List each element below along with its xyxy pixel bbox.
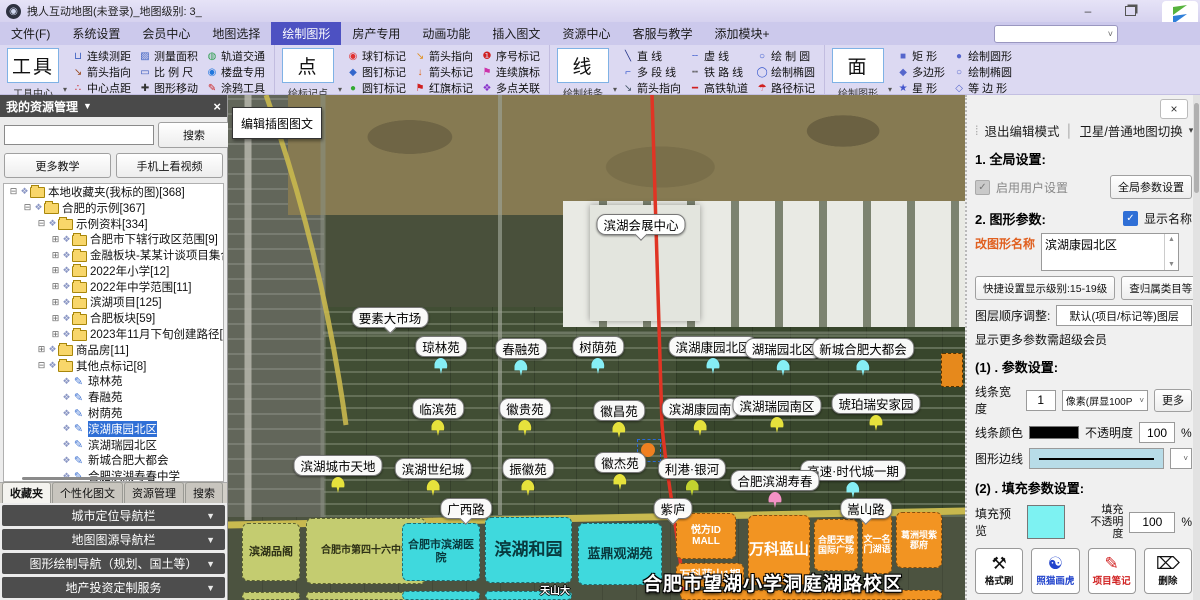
pin-dot-icon <box>518 420 531 436</box>
polyline-icon: ⌐ <box>622 67 634 78</box>
menu-item[interactable]: 客服与教学 <box>621 22 703 45</box>
tree-diamond-icon <box>61 408 72 419</box>
app-icon: ◉ <box>6 4 21 19</box>
tree-node-icon <box>72 407 85 420</box>
tree-diamond-icon <box>47 218 58 229</box>
tree-node-icon <box>58 345 73 356</box>
pin-dot-icon <box>846 482 859 498</box>
pin-dot-icon <box>768 492 781 508</box>
map-polygon[interactable]: 合肥市滨湖医院 <box>402 523 480 581</box>
map-pin[interactable]: 合肥滨湖寿春 <box>730 470 819 508</box>
tree-node-icon <box>72 314 87 325</box>
menu-item[interactable]: 房产专用 <box>341 22 411 45</box>
toolbar-item[interactable]: ╲直 线 <box>620 48 683 64</box>
railway-line-icon: ┅ <box>689 67 701 78</box>
straight-line-icon: ╲ <box>622 51 634 62</box>
toolbar-item[interactable]: ⊔连续测距 <box>70 48 133 64</box>
accordion-bar[interactable]: 图形绘制导航（规划、国土等） <box>2 553 225 574</box>
toolbar-item[interactable]: ◇等 边 形 <box>951 80 1014 96</box>
chevron-down-icon: ˅ <box>1108 29 1117 39</box>
pin-dot-icon <box>431 420 444 436</box>
map-pin[interactable]: 要素大市场 <box>352 307 429 332</box>
fill-settings-title: (2) . 填充参数设置: <box>975 478 1192 497</box>
draw-ellipse2-icon: ○ <box>953 67 965 78</box>
tree-expander-icon[interactable] <box>50 313 61 324</box>
panel-scrollbar[interactable] <box>1193 95 1200 600</box>
toolbar-item[interactable]: ◆图钉标记 <box>345 64 408 80</box>
map-pin[interactable]: 徽杰苑 <box>594 452 646 490</box>
fill-opacity-label: 填充 <box>1101 504 1123 516</box>
tree-expander-icon[interactable] <box>36 218 47 229</box>
shape-params-title: 2. 图形参数: <box>975 209 1046 228</box>
toolbar-item[interactable]: ↘箭头指向 <box>70 64 133 80</box>
arrow-point-icon: ↘ <box>622 83 634 94</box>
map-pin[interactable]: 滨湖世纪城 <box>395 458 472 496</box>
map-small-label: 天山大 <box>540 582 570 597</box>
tree-diamond-icon <box>33 202 44 213</box>
toolbar-item[interactable]: ◉楼盘专用 <box>204 64 267 80</box>
arrow-point-icon: ↘ <box>414 51 426 62</box>
toolbar-item[interactable]: ❶序号标记 <box>479 48 542 64</box>
tree-node[interactable]: 合肥板块[59] <box>4 310 223 326</box>
map-pin[interactable]: 振徽苑 <box>502 458 554 496</box>
toolbar-item[interactable]: ↘箭头指向 <box>412 48 475 64</box>
rect-icon: ■ <box>897 51 909 62</box>
line-opacity-input[interactable] <box>1139 422 1175 443</box>
tree-node[interactable]: 示例资料[334] <box>4 216 223 232</box>
tree-node-icon <box>72 454 85 467</box>
toolbar-item[interactable]: ■矩 形 <box>895 48 947 64</box>
tree-expander-icon[interactable] <box>50 297 61 308</box>
tree-node-icon <box>58 219 73 230</box>
tree-node-icon <box>72 282 87 293</box>
sidebar-tab[interactable]: 资源管理 <box>124 482 184 503</box>
close-icon[interactable]: × <box>213 99 221 114</box>
center-distance-icon: ∴ <box>72 83 84 94</box>
toolbar-item[interactable]: ❖多点关联 <box>479 80 542 96</box>
opacity-label: 不透明度 <box>1085 424 1133 441</box>
tree-expander-icon[interactable] <box>22 202 33 213</box>
toolbar-item[interactable]: ↘箭头指向 <box>620 80 683 96</box>
hsr-track-icon: ━ <box>689 83 701 94</box>
toolbar-item[interactable]: ┅铁 路 线 <box>687 64 750 80</box>
tree-diamond-icon <box>61 376 72 387</box>
map-pin[interactable]: 滨湖城市天地 <box>293 455 382 493</box>
tree-node-icon <box>72 391 85 404</box>
toolbar-item[interactable]: ●绘制圆形 <box>951 48 1014 64</box>
tree-node[interactable]: 滨湖康园北区 <box>4 421 223 437</box>
menu-item[interactable]: 系统设置 <box>61 22 131 45</box>
map-polygon[interactable] <box>242 592 300 600</box>
accordion-bar[interactable]: 城市定位导航栏 <box>2 505 225 526</box>
map-polygon[interactable] <box>402 591 480 600</box>
tree-node-icon <box>72 251 87 262</box>
tree-node[interactable]: 本地收藏夹(我标的图)[368] <box>4 184 223 200</box>
edge-style-select[interactable] <box>1029 448 1164 469</box>
toolbar-item[interactable]: ○绘制椭圆 <box>951 64 1014 80</box>
quick-level-button[interactable]: 快捷设置显示级别:15-19级 <box>975 276 1115 300</box>
pin-dot-icon <box>685 480 698 496</box>
panel-tool-button[interactable]: ☯ 照猫画虎 <box>1031 548 1079 594</box>
tree-node[interactable]: 合肥市下辖行政区范围[9] <box>4 231 223 247</box>
tree-node-icon <box>72 266 87 277</box>
small-poi-marker[interactable] <box>941 353 963 387</box>
pin-dot-icon <box>434 358 447 374</box>
tree-diamond-icon <box>19 186 30 197</box>
search-button[interactable]: 搜索 <box>158 122 230 148</box>
rename-label: 改图形名称 <box>975 235 1035 252</box>
tree-diamond-icon <box>61 455 72 466</box>
map-pin[interactable]: 利港·银河 <box>658 458 726 496</box>
menu-item[interactable]: 动画功能 <box>411 22 481 45</box>
tree-diamond-icon <box>61 392 72 403</box>
global-params-button[interactable]: 全局参数设置 <box>1110 175 1192 199</box>
spin-down-icon[interactable]: ▼ <box>1168 261 1175 268</box>
menu-item[interactable]: 会员中心 <box>131 22 201 45</box>
toolbar-item[interactable]: ○绘 制 圆 <box>754 48 817 64</box>
map-pin[interactable]: 湖瑞园北区 <box>745 338 822 376</box>
chevron-down-icon[interactable]: ▾ <box>888 85 892 94</box>
name-scroll-spinner[interactable]: ▲ ▼ <box>1164 234 1178 270</box>
pin-dot-icon <box>869 415 882 431</box>
tree-diamond-icon <box>61 234 72 245</box>
chevron-down-icon: ˅ <box>1139 396 1144 405</box>
sidebar-tab[interactable]: 收藏夹 <box>2 482 51 503</box>
pin-dot-icon <box>776 360 789 376</box>
line-width-input[interactable] <box>1026 390 1056 411</box>
pin-dot-icon <box>856 360 869 376</box>
toolbar-item[interactable]: ◉球钉标记 <box>345 48 408 64</box>
accordion-bar[interactable]: 地图图源导航栏 <box>2 529 225 550</box>
toolbar-group-tools: 工具 工具中心 ▾ ⊔连续测距↘箭头指向∴中心点距▨测量面积▭比 例 尺✚图形移… <box>0 45 275 94</box>
tree-node[interactable]: 滨湖项目[125] <box>4 295 223 311</box>
panel-tool-buttons: ⚒ 格式刷 ☯ 照猫画虎 ✎ 项目笔记 ⌦ 删除 <box>975 548 1192 594</box>
toolbar-item[interactable]: ◆多边形 <box>895 64 947 80</box>
quick-search-combobox[interactable]: ˅ <box>994 25 1118 43</box>
menu-item[interactable]: 地图选择 <box>201 22 271 45</box>
exit-edit-mode-link[interactable]: 退出编辑模式 <box>984 121 1059 140</box>
building-icon: ◉ <box>206 67 218 78</box>
toolbar-item[interactable]: ☂路径标记 <box>754 80 817 96</box>
restore-button[interactable] <box>1122 4 1138 18</box>
pin-dot-icon <box>770 417 783 433</box>
map-pin[interactable]: 滨湖瑞园南区 <box>732 395 821 433</box>
doodle-icon: ✎ <box>206 83 218 94</box>
tree-diamond-icon <box>61 313 72 324</box>
copy-cat-icon: ☯ <box>1048 555 1063 572</box>
map-pin[interactable]: 徽贵苑 <box>499 398 551 436</box>
edit-insert-text-box[interactable]: 编辑插图图文 <box>232 107 322 139</box>
menu-item[interactable]: 添加模块+ <box>703 22 780 45</box>
tree-node[interactable]: 金融板块-某某计谈项目集合[10] <box>4 247 223 263</box>
param-settings-title: (1) . 参数设置: <box>975 357 1192 376</box>
draw-circle-icon: ○ <box>756 51 768 62</box>
search-input[interactable] <box>4 125 154 145</box>
tree-diamond-icon <box>61 265 72 276</box>
tree-diamond-icon <box>61 250 72 261</box>
resource-tree: 本地收藏夹(我标的图)[368] 合肥的示例[367] 示例资料[334] 合肥… <box>3 183 224 482</box>
polygon-eq-icon: ◇ <box>953 83 965 94</box>
measure-area-icon: ▨ <box>139 51 151 62</box>
panel-tool-button[interactable]: ⌦ 删除 <box>1144 548 1192 594</box>
toolbar-item[interactable]: ┄虚 线 <box>687 48 750 64</box>
title-bar: ◉ 拽人互动地图(未登录)_地图级别: 3_ – <box>0 0 1200 22</box>
panel-tool-button[interactable]: ✎ 项目笔记 <box>1088 548 1136 594</box>
pin-dot-icon <box>693 420 706 436</box>
shape-name-input[interactable]: 滨湖康园北区 <box>1042 234 1164 270</box>
toolbar-item[interactable]: ✚图形移动 <box>137 80 200 96</box>
tree-diamond-icon <box>61 281 72 292</box>
tree-expander-icon[interactable] <box>50 329 61 340</box>
drag-handle-icon: ⁞ <box>975 124 978 138</box>
tree-node-icon <box>58 361 73 372</box>
shape-big-button[interactable]: 面 <box>832 48 884 83</box>
pin-dot-icon <box>521 480 534 496</box>
project-note-icon: ✎ <box>1105 555 1119 572</box>
tree-node[interactable]: 新城合肥大都会 <box>4 453 223 469</box>
toolbar-group-lines: 线 绘制线条 ▾ ╲直 线⌐多 段 线↘箭头指向┄虚 线┅铁 路 线━高铁轨道○… <box>550 45 825 94</box>
pin-dot-icon <box>514 360 527 376</box>
pin-dot-icon <box>706 358 719 374</box>
map-pin[interactable]: 临滨苑 <box>412 398 464 436</box>
toolbar-item[interactable]: ◍轨道交通 <box>204 48 267 64</box>
tree-node[interactable]: 树荫苑 <box>4 405 223 421</box>
map-pin[interactable]: 嵩山路 <box>840 498 892 523</box>
layer-order-select[interactable]: 默认(项目/标记等)图层 <box>1056 305 1192 326</box>
query-category-button[interactable]: 查归属类目等 <box>1121 276 1200 300</box>
tree-diamond-icon <box>61 297 72 308</box>
more-button[interactable]: 更多 <box>1154 389 1192 412</box>
sidebar-tab[interactable]: 搜索 <box>185 482 223 503</box>
pin-mark-icon: ◆ <box>347 67 359 78</box>
tree-node-icon <box>72 438 85 451</box>
menu-item[interactable]: 资源中心 <box>551 22 621 45</box>
tree-diamond-icon <box>61 329 72 340</box>
tree-node[interactable]: 滨湖瑞园北区 <box>4 437 223 453</box>
tree-expander-icon[interactable] <box>50 234 61 245</box>
ball-pin-icon: ◉ <box>347 51 359 62</box>
scale-bar-icon: ▭ <box>139 67 151 78</box>
pin-dot-icon <box>612 422 625 438</box>
tree-node-icon <box>72 235 87 246</box>
map-pin[interactable]: 滨湖会展中心 <box>596 214 685 239</box>
menu-item[interactable]: 文件(F) <box>0 22 61 45</box>
tools-big-button[interactable]: 工具 <box>7 48 59 83</box>
toolbar-item[interactable]: ⚑连续旗标 <box>479 64 542 80</box>
tree-node[interactable]: 商品房[11] <box>4 342 223 358</box>
ribbon-toolbar: 工具 工具中心 ▾ ⊔连续测距↘箭头指向∴中心点距▨测量面积▭比 例 尺✚图形移… <box>0 45 1200 95</box>
map-pin[interactable]: 徽昌苑 <box>593 400 645 438</box>
tree-expander-icon[interactable] <box>50 265 61 276</box>
spin-up-icon[interactable]: ▲ <box>1168 236 1175 243</box>
layer-order-label: 图层顺序调整: <box>975 307 1050 324</box>
tree-node-icon <box>72 422 85 435</box>
fill-preview-swatch[interactable] <box>1027 505 1065 539</box>
shape-name-box: 滨湖康园北区 ▲ ▼ <box>1041 233 1179 271</box>
menu-item[interactable]: 绘制图形 <box>271 22 341 45</box>
pin-dot-icon <box>591 358 604 374</box>
chevron-down-icon[interactable]: ▾ <box>63 85 67 94</box>
tree-node[interactable]: 其他点标记[8] <box>4 358 223 374</box>
vip-note: 显示更多参数需超级会员 <box>975 331 1192 348</box>
toolbar-item[interactable]: ⌐多 段 线 <box>620 64 683 80</box>
map-pin[interactable]: 琥珀瑞安家园 <box>831 393 920 431</box>
tree-node-icon <box>72 470 85 482</box>
map-big-label: 合肥市望湖小学洞庭湖路校区 <box>628 569 918 596</box>
toolbar-item[interactable]: ✎涂鸦工具 <box>204 80 267 96</box>
sidebar-tab-strip: 收藏夹个性化图文资源管理搜索 <box>0 482 227 503</box>
arrow-mark-icon: ↓ <box>414 67 426 78</box>
fill-preview-label: 填充预览 <box>975 505 1021 539</box>
path-mark-icon: ☂ <box>756 83 768 94</box>
map-pin[interactable]: 新城合肥大都会 <box>812 338 914 376</box>
multi-point-icon: ❖ <box>481 83 493 94</box>
toolbar-item[interactable]: ↓箭头标记 <box>412 64 475 80</box>
close-icon[interactable]: × <box>1160 99 1188 119</box>
edge-style-label: 图形边线 <box>975 450 1023 467</box>
toolbar-item[interactable]: ∴中心点距 <box>70 80 133 96</box>
tree-node[interactable]: 春融苑 <box>4 389 223 405</box>
tree-node[interactable]: 琼林苑 <box>4 374 223 390</box>
tree-node[interactable]: 2023年11月下旬创建路径[2] <box>4 326 223 342</box>
fill-opacity-input[interactable] <box>1129 512 1175 533</box>
map-pin[interactable]: 树荫苑 <box>572 336 624 374</box>
flag-series-icon: ⚑ <box>481 67 493 78</box>
arrow-point-icon: ↘ <box>72 67 84 78</box>
measure-distance-icon: ⊔ <box>72 51 84 62</box>
brand-chevron-green <box>1173 5 1187 15</box>
tree-expander-icon[interactable] <box>50 281 61 292</box>
tree-horizontal-scrollbar[interactable] <box>22 477 153 480</box>
map-pin[interactable]: 琼林苑 <box>415 336 467 374</box>
tree-expander-icon[interactable] <box>36 344 47 355</box>
tree-diamond-icon <box>47 360 58 371</box>
toolbar-item[interactable]: ⚑红旗标记 <box>412 80 475 96</box>
window-title: 拽人互动地图(未登录)_地图级别: 3_ <box>27 3 202 19</box>
toolbar-item[interactable]: ●圆钉标记 <box>345 80 408 96</box>
toolbar-item[interactable]: ▨测量面积 <box>137 48 200 64</box>
map-canvas[interactable]: 滨湖品阁合肥市第四十六中学合肥市滨湖医院滨湖和园蓝鼎观湖苑悦方ID MALL万科… <box>228 95 965 600</box>
line-width-unit-select[interactable]: 像素(屏显100P ˅ <box>1062 390 1148 411</box>
tree-diamond-icon <box>47 344 58 355</box>
delete-icon: ⌦ <box>1156 555 1180 572</box>
chevron-down-icon[interactable]: ▾ <box>338 85 342 94</box>
menu-item[interactable]: 插入图文 <box>481 22 551 45</box>
tree-node[interactable]: 2022年小学[12] <box>4 263 223 279</box>
map-polygon[interactable]: 滨湖品阁 <box>242 523 300 581</box>
map-pin[interactable]: 广西路 <box>440 498 492 523</box>
rail-transit-icon: ◍ <box>206 51 218 62</box>
star-icon: ★ <box>897 83 909 94</box>
number-mark-icon: ❶ <box>481 51 493 62</box>
format-brush-icon: ⚒ <box>992 555 1007 572</box>
red-flag-icon: ⚑ <box>414 83 426 94</box>
tree-diamond-icon <box>61 423 72 434</box>
tree-expander-icon[interactable] <box>36 360 47 371</box>
accordion-bar[interactable]: 地产投资定制服务 <box>2 577 225 598</box>
global-settings-title: 1. 全局设置: <box>975 149 1192 168</box>
map-pin[interactable]: 滨湖康园南 <box>662 398 739 436</box>
shape-move-icon: ✚ <box>139 83 151 94</box>
edge-line-preview <box>1039 458 1153 460</box>
map-polygon[interactable]: 滨湖和园 <box>485 517 572 583</box>
toolbar-group-shapes: 面 绘制图形 ▾ ■矩 形◆多边形★星 形●绘制圆形○绘制椭圆◇等 边 形 <box>825 45 1021 94</box>
tree-node-icon <box>72 375 85 388</box>
sidebar-header[interactable]: 我的资源管理 ▼ × <box>0 95 227 117</box>
resource-sidebar: 我的资源管理 ▼ × 搜索 ▾ 更多教学 手机上看视频 本地收藏夹(我标的图)[… <box>0 95 228 600</box>
polygon-icon: ◆ <box>897 67 909 78</box>
sidebar-title: 我的资源管理 <box>6 98 78 115</box>
edit-properties-panel: × ⁞ 退出编辑模式 │ 卫星/普通地图切换 ▾ 地图制图 1. 全局设置: ✓… <box>965 95 1200 600</box>
tree-node-icon <box>72 298 87 309</box>
toolbar-group-points: 点 绘标记点 ▾ ◉球钉标记◆图钉标记●圆钉标记↘箭头指向↓箭头标记⚑红旗标记❶… <box>275 45 550 94</box>
tree-diamond-icon <box>61 439 72 450</box>
line-color-swatch[interactable] <box>1029 426 1079 439</box>
tree-expander-icon[interactable] <box>50 250 61 261</box>
tree-node[interactable]: 合肥的示例[367] <box>4 200 223 216</box>
map-polygon[interactable]: 葛洲坝紫郡府 <box>896 512 942 568</box>
draw-ellipse-icon: ◯ <box>756 67 768 78</box>
minimize-button[interactable]: – <box>1080 4 1096 18</box>
pin-dot-icon <box>613 474 626 490</box>
panel-tool-button[interactable]: ⚒ 格式刷 <box>975 548 1023 594</box>
pin-dot-icon <box>331 477 344 493</box>
dashed-line-icon: ┄ <box>689 51 701 62</box>
toolbar-item[interactable]: ★星 形 <box>895 80 947 96</box>
chevron-down-icon: ▼ <box>83 101 92 111</box>
line-width-label: 线条宽度 <box>975 383 1020 417</box>
phone-video-button[interactable]: 手机上看视频 <box>116 153 223 178</box>
tree-node-icon <box>44 203 59 214</box>
line-big-button[interactable]: 线 <box>557 48 609 83</box>
map-pin[interactable]: 春融苑 <box>495 338 547 376</box>
restore-icon <box>1125 6 1136 16</box>
sidebar-tab[interactable]: 个性化图文 <box>52 482 123 503</box>
enable-user-settings-checkbox[interactable]: ✓ <box>975 180 990 195</box>
map-polygon[interactable]: 合肥天赋国际广场 <box>814 519 858 571</box>
toolbar-item[interactable]: ▭比 例 尺 <box>137 64 200 80</box>
line-color-label: 线条颜色 <box>975 424 1023 441</box>
toolbar-item[interactable]: ◯绘制椭圆 <box>754 64 817 80</box>
draw-circle2-icon: ● <box>953 51 965 62</box>
show-name-checkbox[interactable]: ✓ <box>1123 211 1138 226</box>
edge-style-caret[interactable]: ˅ <box>1170 448 1192 469</box>
chevron-down-icon[interactable]: ▾ <box>613 85 617 94</box>
point-big-button[interactable]: 点 <box>282 48 334 83</box>
tree-expander-icon[interactable] <box>8 186 19 197</box>
toolbar-item[interactable]: ━高铁轨道 <box>687 80 750 96</box>
tree-node[interactable]: 2022年中学范围[11] <box>4 279 223 295</box>
sidebar-accordions: 城市定位导航栏地图图源导航栏图形绘制导航（规划、国土等）地产投资定制服务 <box>0 503 227 600</box>
tree-node-icon <box>30 187 45 198</box>
map-pin[interactable]: 紫庐 <box>653 498 692 523</box>
circle-pin-icon: ● <box>347 83 359 94</box>
satellite-switch-link[interactable]: 卫星/普通地图切换 <box>1079 121 1182 140</box>
tree-node-icon <box>72 330 87 341</box>
more-teaching-button[interactable]: 更多教学 <box>4 153 111 178</box>
pin-dot-icon <box>426 480 439 496</box>
